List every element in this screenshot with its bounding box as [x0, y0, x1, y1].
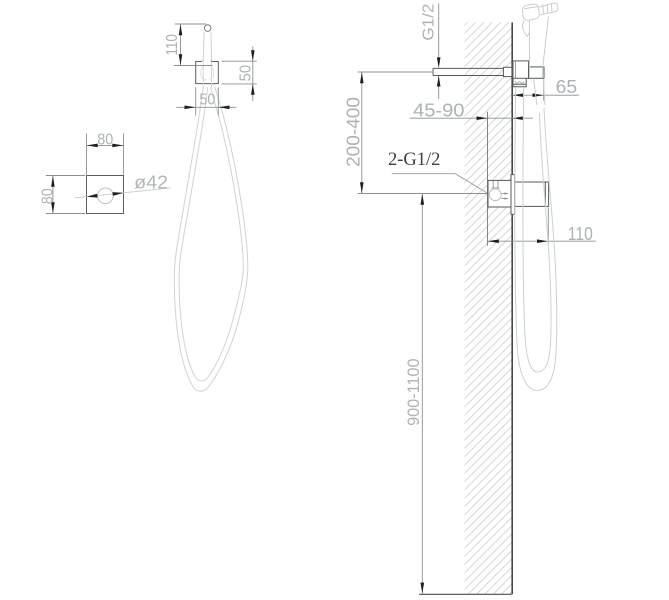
svg-text:50: 50: [199, 91, 215, 108]
svg-text:900-1100: 900-1100: [405, 359, 423, 426]
svg-text:110: 110: [568, 223, 593, 244]
svg-text:110: 110: [164, 34, 181, 56]
svg-text:ø42: ø42: [134, 172, 168, 192]
svg-text:G1/2: G1/2: [420, 3, 437, 40]
svg-text:50: 50: [237, 65, 254, 82]
svg-text:65: 65: [556, 76, 578, 97]
svg-text:80: 80: [97, 132, 113, 149]
svg-text:200-400: 200-400: [344, 97, 364, 167]
svg-text:2-G1/2: 2-G1/2: [388, 150, 440, 170]
svg-text:45-90: 45-90: [413, 99, 465, 120]
svg-text:80: 80: [39, 188, 56, 204]
